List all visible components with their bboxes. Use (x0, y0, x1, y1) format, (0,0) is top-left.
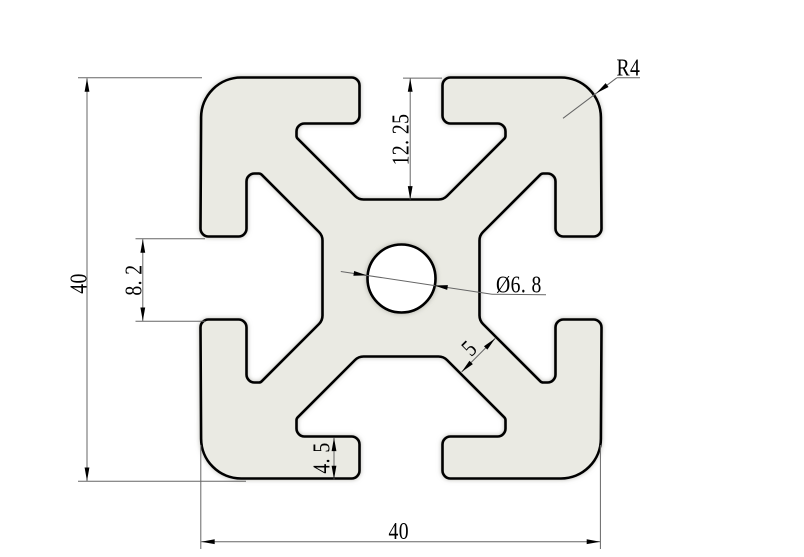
svg-text:R4: R4 (617, 54, 641, 81)
svg-text:Ø6. 8: Ø6. 8 (496, 270, 542, 297)
svg-text:40: 40 (64, 273, 91, 293)
svg-text:4. 5: 4. 5 (308, 442, 335, 473)
svg-text:40: 40 (389, 517, 409, 544)
svg-text:8. 2: 8. 2 (120, 265, 147, 296)
svg-text:12. 25: 12. 25 (386, 114, 413, 166)
